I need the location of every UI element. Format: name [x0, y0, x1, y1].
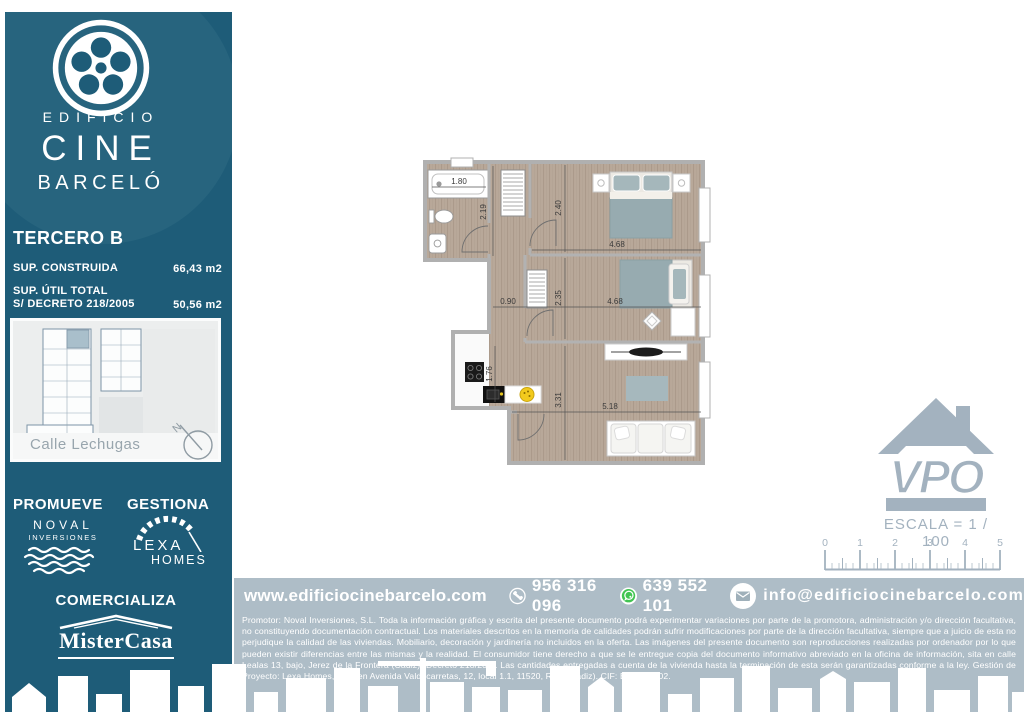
vpo-logo-icon: VPO: [870, 392, 1002, 516]
street-name: Calle Lechugas: [30, 436, 140, 453]
phone-number: 956 316 096: [532, 576, 598, 616]
ruler-ticks: [825, 550, 1000, 570]
dim-living-height: 3.31: [554, 392, 563, 408]
ground-strip: [0, 712, 1024, 724]
dim-hall-width: 0.90: [500, 297, 516, 306]
email-icon: [730, 583, 756, 609]
brand-line3: BARCELÓ: [5, 173, 197, 193]
rug: [626, 376, 668, 401]
wardrobe-1: [501, 170, 525, 216]
useful-area-value: 50,56 m2: [173, 299, 222, 311]
svg-text:2: 2: [892, 537, 898, 549]
floorplan-svg: 1.80 2.19 2.40 4.68 0.90 2.35 4.68 1.76 …: [405, 150, 725, 480]
comercializa-heading: COMERCIALIZA: [5, 592, 227, 609]
built-area-label: SUP. CONSTRUIDA: [13, 262, 118, 274]
phone-group[interactable]: 956 316 096: [509, 576, 598, 616]
mistercasa-name: MisterCasa: [5, 628, 227, 654]
dim-bath-height: 2.19: [479, 204, 488, 220]
contact-row: www.edificiocinebarcelo.com 956 316 096: [244, 583, 1024, 609]
ruler-numbers: 0 1 2 3 4 5: [822, 537, 1003, 549]
north-compass-icon: N: [170, 417, 216, 463]
dim-living-width: 5.18: [602, 402, 618, 411]
skyline-silhouette: [0, 653, 1024, 713]
lexa-name: LEXA: [133, 537, 183, 554]
useful-area-label-2: S/ DECRETO 218/2005: [13, 298, 135, 310]
siteplan-thumbnail: Calle Lechugas N: [10, 318, 221, 462]
film-reel-logo-icon: [50, 17, 152, 119]
dim-bath-width: 1.80: [451, 177, 467, 186]
brand-line2: CINE: [5, 131, 197, 166]
dim-bed2-width: 4.68: [607, 297, 623, 306]
lexa-subname: HOMES: [151, 553, 207, 567]
built-area-row: SUP. CONSTRUIDA 66,43 m2: [13, 262, 225, 275]
email-address: info@edificiocinebarcelo.com: [763, 587, 1024, 605]
svg-text:3: 3: [927, 537, 933, 549]
noval-logo: NOVAL INVERSIONES: [19, 519, 107, 582]
compass-n-label: N: [170, 421, 184, 435]
highlighted-unit: [67, 330, 89, 348]
website-link[interactable]: www.edificiocinebarcelo.com: [244, 586, 487, 606]
phone-icon: [509, 583, 526, 609]
noval-subname: INVERSIONES: [19, 534, 107, 542]
brand-line1: EDIFICIO: [5, 110, 197, 124]
email-group[interactable]: info@edificiocinebarcelo.com: [730, 583, 1024, 609]
vpo-letters: VPO: [889, 450, 984, 503]
wardrobe-2: [527, 270, 547, 308]
noval-waves-icon: [21, 546, 105, 578]
dim-kitchen-height: 1.76: [485, 366, 494, 382]
dim-bed2-height: 2.35: [554, 290, 563, 306]
promueve-heading: PROMUEVE: [13, 496, 103, 513]
brochure-page: EDIFICIO CINE BARCELÓ TERCERO B SUP. CON…: [0, 0, 1024, 724]
unit-title: TERCERO B: [13, 228, 124, 249]
useful-area-label-1: SUP. ÚTIL TOTAL: [13, 285, 108, 297]
svg-text:0: 0: [822, 537, 828, 549]
brand-wordmark: EDIFICIO CINE BARCELÓ: [5, 110, 197, 193]
built-area-value: 66,43 m2: [173, 263, 222, 275]
svg-text:1: 1: [857, 537, 863, 549]
svg-text:5: 5: [997, 537, 1003, 549]
whatsapp-icon: [620, 583, 637, 609]
sidebar: EDIFICIO CINE BARCELÓ TERCERO B SUP. CON…: [5, 12, 232, 713]
whatsapp-number: 639 552 101: [643, 576, 709, 616]
scale-ruler: 0 1 2 3 4 5: [821, 536, 1007, 574]
noval-name: NOVAL: [19, 519, 107, 531]
dim-bed1-width: 4.68: [609, 240, 625, 249]
svg-text:4: 4: [962, 537, 968, 549]
dim-bed1-height: 2.40: [554, 200, 563, 216]
whatsapp-group[interactable]: 639 552 101: [620, 576, 709, 616]
useful-area-row: SUP. ÚTIL TOTAL S/ DECRETO 218/2005 50,5…: [13, 285, 225, 311]
